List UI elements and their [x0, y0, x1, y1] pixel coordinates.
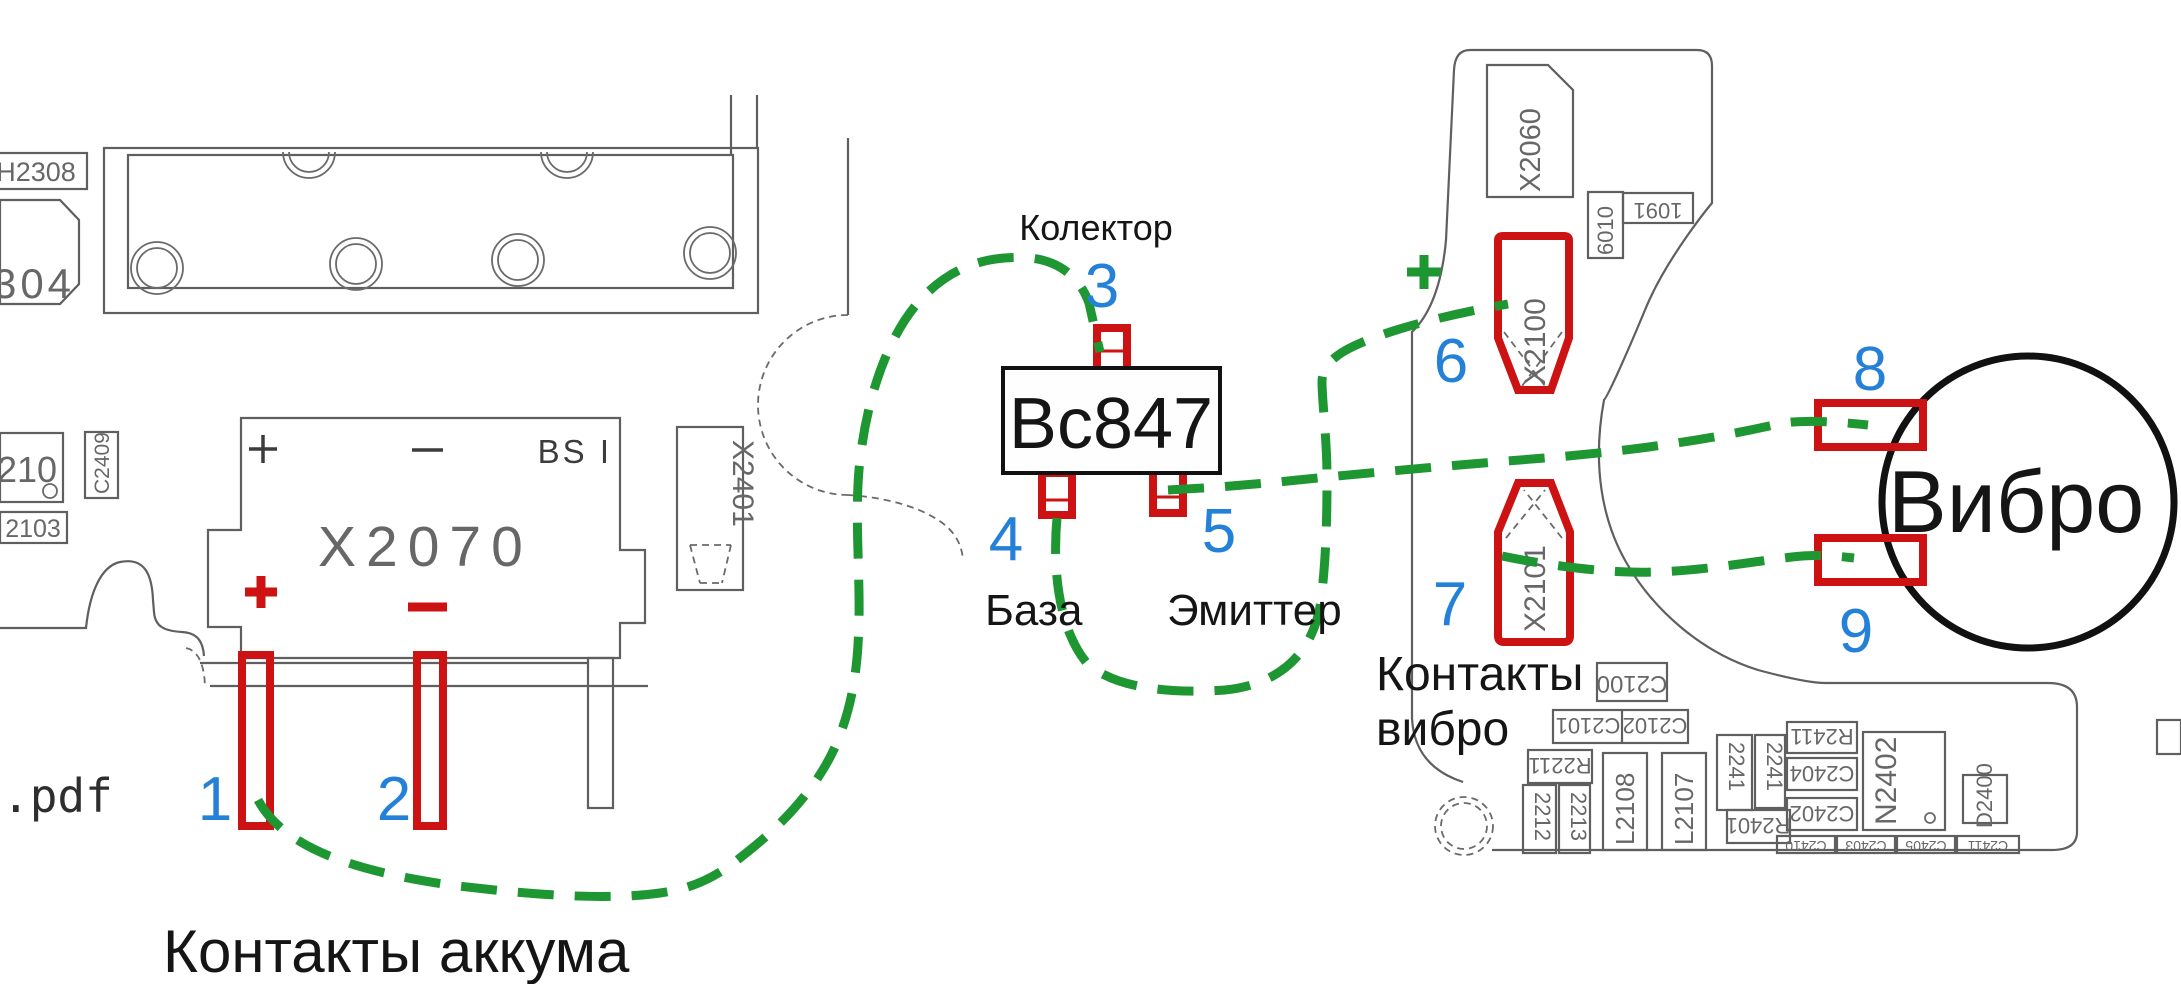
battery-pin1-marker	[242, 655, 270, 826]
emitter-label: Эмиттер	[1167, 586, 1342, 635]
c2404-label: C2404	[1790, 761, 1855, 786]
number-5: 5	[1202, 497, 1236, 566]
bsi-label: BS I	[538, 433, 612, 470]
c2405-label: C2405	[1905, 838, 1946, 854]
x2060-label: X2060	[1515, 108, 1547, 192]
c2403-label: C2403	[1845, 838, 1886, 854]
r2103-label: 2103	[5, 515, 61, 543]
d2400-label: D2400	[1972, 763, 1997, 828]
l2108-label: L2108	[1610, 773, 1640, 845]
screw-holes	[131, 152, 736, 294]
cap-b-label: 2213	[1566, 792, 1591, 841]
c2100-label: C2100	[1597, 670, 1668, 697]
number-8: 8	[1853, 335, 1887, 404]
battery-plus-marker	[245, 576, 277, 608]
m304-label: 304	[0, 260, 75, 307]
x2401-label: X2401	[726, 440, 759, 527]
number-3: 3	[1085, 252, 1119, 321]
battery-contacts-caption: Контакты аккума	[163, 918, 630, 984]
pdf-fragment: .pdf	[2, 769, 113, 823]
n2402-label: N2402	[1870, 737, 1903, 825]
text-labels: Колектор База Эмиттер Контакты аккума Ко…	[2, 207, 1583, 984]
partial-component	[2157, 720, 2181, 754]
c2411-label: C2411	[1968, 838, 2008, 854]
l2107-label: L2107	[1669, 773, 1699, 845]
x2401-connector: X2401	[677, 427, 759, 590]
board-edge-wavy	[0, 561, 204, 656]
number-2: 2	[377, 765, 411, 834]
r2211-label: R2211	[1528, 753, 1591, 778]
number-7: 7	[1433, 570, 1467, 639]
h2308-label: H2308	[0, 157, 76, 187]
cap-d-label: 2241	[1762, 742, 1787, 791]
c2409-label: C2409	[91, 432, 114, 494]
module-outline-inner	[128, 155, 733, 288]
silk-plus	[249, 435, 277, 463]
wire-x2101-to-terminal9	[1502, 555, 1854, 572]
battery-pin2-marker	[417, 655, 443, 826]
c2101-label: C2101	[1556, 713, 1621, 738]
repair-diagram: H2308 304 210 C2409 2103 X2070 BS I	[0, 0, 2181, 984]
number-1: 1	[198, 765, 232, 834]
base-pad-marker	[1042, 473, 1072, 515]
component-cluster: C2100 C2101 C2102 R2211 2212 2213 L2108 …	[1523, 663, 2181, 854]
x2070-label: X2070	[318, 515, 533, 579]
r2401-label: R2401	[1726, 813, 1791, 838]
x2100-label: X2100	[1519, 298, 1552, 385]
bsi-pin	[588, 658, 613, 808]
c2402-label: C2402	[1790, 801, 1855, 826]
transistor-label: Bc847	[1009, 384, 1213, 464]
mount-hole	[1435, 797, 1493, 855]
vibro-contacts-caption-line1: Контакты	[1376, 648, 1583, 701]
x2401-pad	[690, 545, 731, 583]
l6010-label: 6010	[1593, 206, 1618, 255]
board-edge-corner	[186, 648, 205, 687]
number-6: 6	[1434, 327, 1468, 396]
c2410-label: C2410	[1785, 838, 1826, 854]
collector-label: Колектор	[1019, 207, 1173, 248]
r2411-label: R2411	[1790, 724, 1853, 749]
cap-a-label: 2212	[1530, 792, 1555, 841]
top-left-module: H2308 304 210 C2409 2103	[0, 95, 758, 543]
vibro-contacts-caption-line2: вибро	[1376, 703, 1509, 756]
n2402-pin1-dot	[1925, 813, 1935, 823]
c2102-label: C2102	[1623, 713, 1688, 738]
circular-cutout	[758, 315, 848, 495]
cap-c-label: 2241	[1724, 742, 1749, 791]
number-9: 9	[1839, 597, 1873, 666]
vibro-plus-marker	[1407, 255, 1441, 289]
r1091-label: 1091	[1634, 198, 1683, 223]
edge-tail	[848, 495, 963, 560]
transistor: Bc847	[1003, 368, 1220, 473]
number-4: 4	[989, 505, 1023, 574]
base-label: База	[985, 586, 1083, 635]
